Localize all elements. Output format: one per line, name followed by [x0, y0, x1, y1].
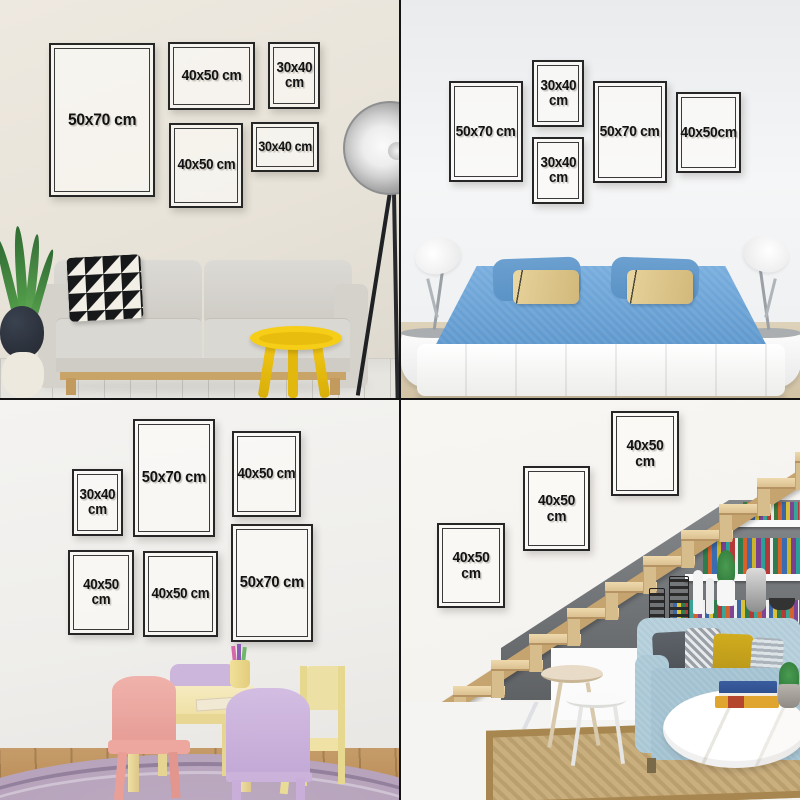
frame-size-label: 40x50 cm — [177, 158, 235, 173]
frame-50x70: 50x70 cm — [593, 81, 667, 183]
frame-mockup-collage: 50x70 cm 40x50 cm 30x40 cm 40x50 cm 30x4… — [0, 0, 800, 800]
side-table-wood-top — [541, 665, 603, 683]
plant-pot-dark — [0, 306, 44, 358]
collage-divider-horizontal — [0, 398, 800, 400]
frame-size-label: 50x70 cm — [456, 124, 516, 139]
frame-50x70: 50x70 cm — [449, 81, 523, 182]
sofa-back-cushion — [204, 260, 352, 322]
frame-40x50: 40x50 cm — [169, 123, 243, 208]
frame-size-label: 40x50 cm — [72, 578, 129, 608]
frame-40x50: 40x50 cm — [232, 431, 301, 517]
sofa-wood-rail — [60, 372, 346, 380]
bed-pillow-tan — [627, 270, 693, 304]
kids-chair-lavender-leg — [296, 778, 305, 800]
frame-50x70: 50x70 cm — [231, 524, 313, 642]
gray-vase-on-table — [778, 684, 800, 708]
table-lamp-shade — [740, 232, 792, 277]
table-lamp-shade — [412, 234, 464, 279]
frame-40x50: 40x50 cm — [168, 42, 255, 110]
frame-50x70: 50x70 cm — [133, 419, 215, 537]
bed-pillow-tan — [513, 270, 579, 304]
quadrant-kids-room: 30x40 cm 50x70 cm 40x50 cm 40x50 cm 40x5… — [0, 400, 399, 800]
frame-size-label: 30x40 cm — [276, 61, 312, 91]
pencil-cup — [230, 660, 250, 688]
table-lamp-stem — [764, 278, 777, 318]
stair-tread — [757, 478, 800, 489]
frame-size-label: 40x50cm — [680, 125, 736, 140]
stair-tread — [795, 452, 800, 463]
sofa-leg — [330, 378, 340, 395]
frame-40x50: 40x50cm — [676, 92, 741, 173]
quadrant-bedroom: 50x70 cm 30x40 cm 30x40 cm 50x70 cm 40x5… — [401, 0, 800, 398]
sofa-seat-cushion — [56, 318, 202, 362]
frame-size-label: 40x50 cm — [182, 68, 242, 83]
sofa-base — [56, 358, 350, 372]
frame-size-label: 40x50 cm — [152, 587, 210, 602]
kids-chair-lavender-front-back — [226, 688, 310, 776]
white-bottle-vase — [706, 578, 714, 614]
frame-size-label: 30x40 cm — [80, 488, 116, 518]
silver-vase — [746, 568, 766, 612]
studio-lamp-bulb — [388, 142, 399, 160]
green-plant — [717, 550, 735, 582]
frame-30x40: 30x40 cm — [72, 469, 123, 536]
frame-size-label: 50x70 cm — [142, 470, 206, 486]
frame-size-label: 50x70 cm — [68, 111, 136, 128]
white-bottle-vase — [693, 570, 703, 614]
nesting-table-top — [566, 692, 626, 708]
bed-mattress-blue — [433, 266, 769, 350]
frame-40x50: 40x50 cm — [143, 551, 218, 637]
plant-vase-white — [717, 580, 735, 606]
kids-chair-yellow-post — [338, 666, 345, 784]
book-yellow — [715, 696, 779, 708]
kids-chair-lavender-leg — [232, 780, 241, 800]
frame-size-label: 50x70 cm — [600, 124, 660, 139]
kids-chair-pink-back — [112, 676, 176, 744]
collage-divider-vertical — [399, 0, 401, 800]
quadrant-living-room: 50x70 cm 40x50 cm 30x40 cm 40x50 cm 30x4… — [0, 0, 399, 398]
triangle-pattern-pillow — [66, 254, 143, 322]
frame-size-label: 50x70 cm — [240, 575, 304, 591]
quadrant-staircase: 40x50 cm 40x50 cm 40x50 cm — [401, 400, 800, 800]
frame-30x40: 30x40 cm — [268, 42, 320, 109]
frame-40x50: 40x50 cm — [68, 550, 134, 635]
frame-size-label: 30x40 cm — [540, 79, 576, 109]
frame-30x40: 30x40 cm — [251, 122, 319, 172]
sofa-leg — [647, 758, 656, 773]
frame-size-label: 40x50 cm — [238, 467, 296, 482]
frame-30x40: 30x40 cm — [532, 137, 584, 204]
stool-leg — [288, 346, 298, 398]
frame-30x40: 30x40 cm — [532, 60, 584, 127]
plant-pot-white — [2, 352, 44, 398]
frame-50x70: 50x70 cm — [49, 43, 155, 197]
frame-size-label: 30x40 cm — [540, 156, 576, 186]
stool-top-recess — [259, 332, 333, 345]
frame-size-label: 30x40 cm — [258, 140, 312, 154]
bed-platform-base — [417, 344, 785, 396]
sofa-leg — [66, 378, 76, 395]
